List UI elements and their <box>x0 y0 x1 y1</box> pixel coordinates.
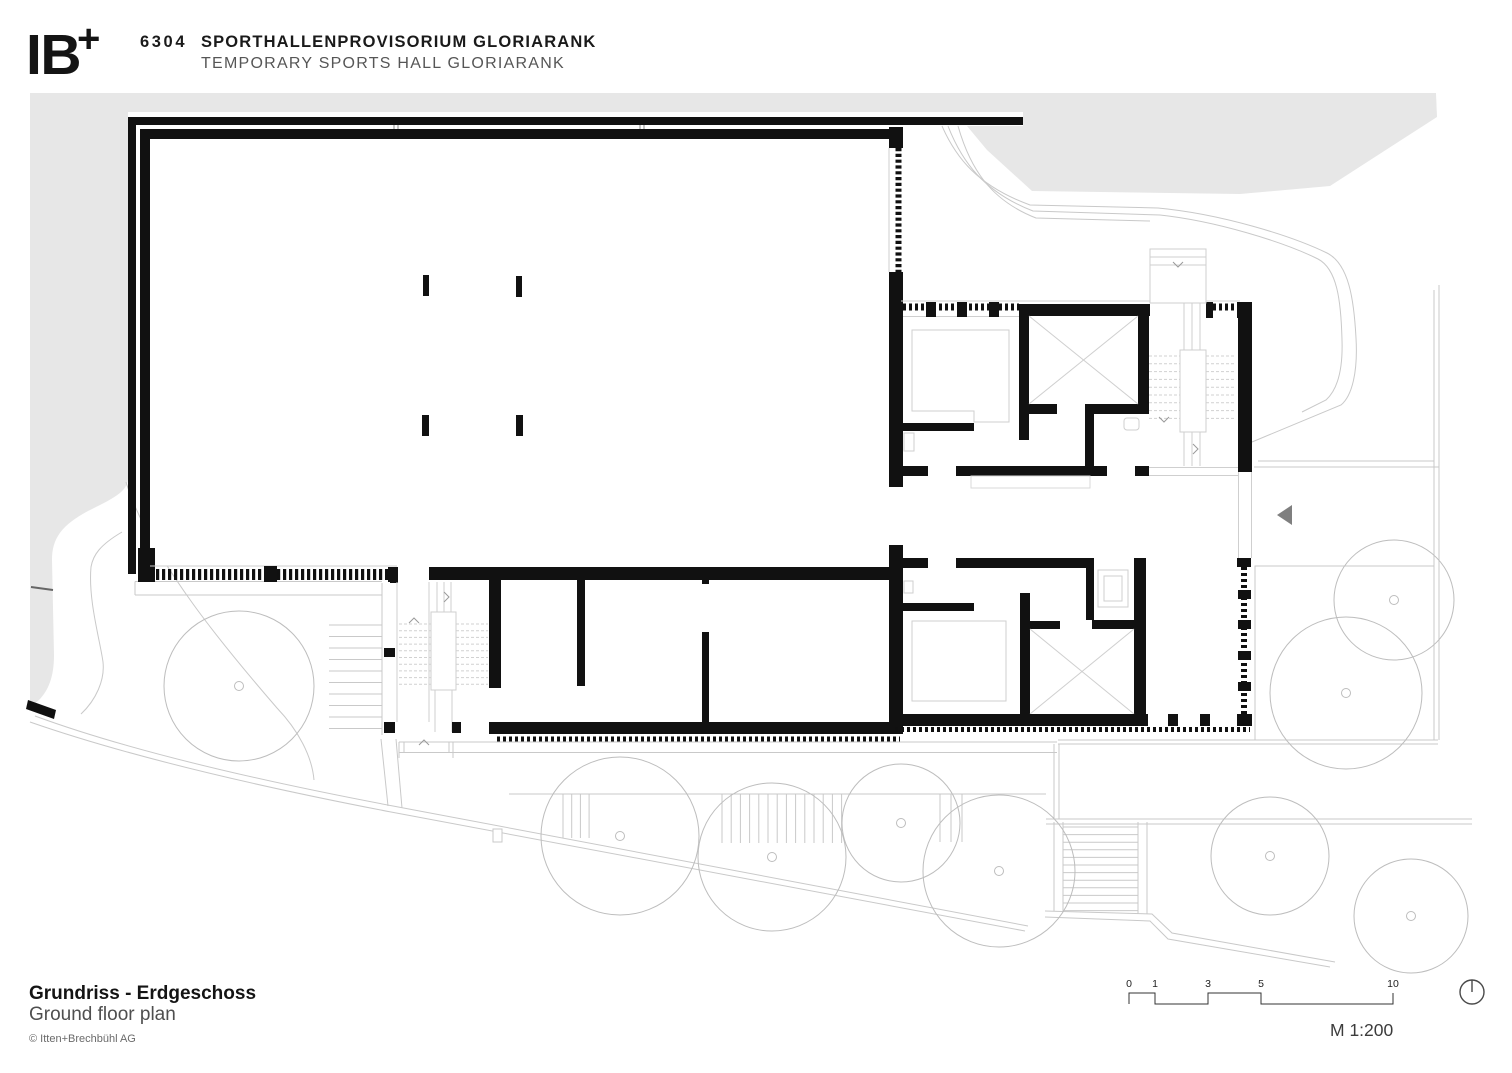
svg-text:IB: IB <box>26 23 80 87</box>
svg-text:Grundriss - Erdgeschoss: Grundriss - Erdgeschoss <box>29 983 256 1004</box>
svg-text:M 1:200: M 1:200 <box>1330 1020 1393 1040</box>
svg-text:Ground floor plan: Ground floor plan <box>29 1004 176 1025</box>
svg-text:+: + <box>77 17 100 61</box>
svg-text:SPORTHALLENPROVISORIUM GLORIAR: SPORTHALLENPROVISORIUM GLORIARANK <box>201 33 596 51</box>
svg-text:© Itten+Brechbühl AG: © Itten+Brechbühl AG <box>29 1033 136 1045</box>
svg-text:10: 10 <box>1387 978 1399 990</box>
svg-text:5: 5 <box>1258 978 1264 990</box>
svg-text:TEMPORARY SPORTS HALL GLORIARA: TEMPORARY SPORTS HALL GLORIARANK <box>201 55 565 72</box>
svg-text:6304: 6304 <box>140 33 187 51</box>
svg-text:0: 0 <box>1126 978 1132 990</box>
svg-text:3: 3 <box>1205 978 1211 990</box>
svg-text:1: 1 <box>1152 978 1158 990</box>
